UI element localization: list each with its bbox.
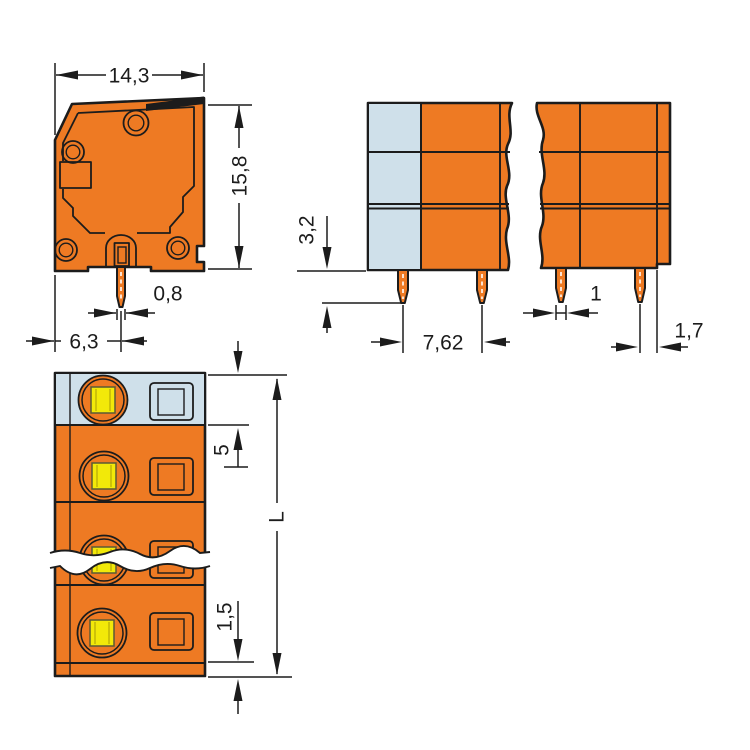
front-marked-pole: [368, 103, 421, 270]
front-view: [368, 103, 670, 303]
technical-drawing: 14,3 15,8 0,8 6,3: [0, 0, 750, 750]
dim-label-end-offset: 1,7: [674, 320, 703, 343]
dim-label-pin-thickness: 1: [590, 283, 602, 306]
dim-end-offset: 1,7: [611, 270, 704, 353]
front-pin-3: [556, 268, 566, 302]
dim-side-height: 15,8: [208, 105, 252, 269]
dim-label-side-height: 15,8: [229, 156, 252, 197]
dim-total-length: L: [266, 378, 289, 675]
dim-pin-pitch: 7,62: [371, 305, 510, 355]
dim-pin-offset: 6,3: [26, 275, 147, 354]
dim-label-end-plate: 1,5: [214, 602, 237, 631]
top-marked-pole: [55, 373, 205, 425]
drawing-canvas: 14,3 15,8 0,8 6,3: [0, 0, 750, 750]
side-view: [55, 97, 204, 308]
dim-label-total-length: L: [266, 511, 289, 523]
top-view: [50, 373, 210, 676]
dim-label-pole-pitch: 5: [211, 444, 234, 456]
dim-pin-width: 0,8: [88, 283, 183, 320]
dim-label-pin-length: 3,2: [296, 215, 319, 244]
front-pin-1: [398, 270, 408, 303]
front-pin-2: [477, 270, 487, 303]
dim-label-pin-width: 0,8: [153, 283, 182, 306]
dim-label-pin-offset: 6,3: [69, 331, 98, 354]
front-right-block: [537, 103, 670, 268]
dim-label-pin-pitch: 7,62: [423, 332, 464, 355]
front-pin-4: [635, 268, 645, 302]
dim-label-side-width: 14,3: [109, 65, 150, 88]
screw-4: [78, 609, 127, 658]
screw-1: [79, 376, 128, 425]
screw-2: [80, 452, 129, 501]
dim-pole-pitch: 5: [208, 341, 287, 467]
